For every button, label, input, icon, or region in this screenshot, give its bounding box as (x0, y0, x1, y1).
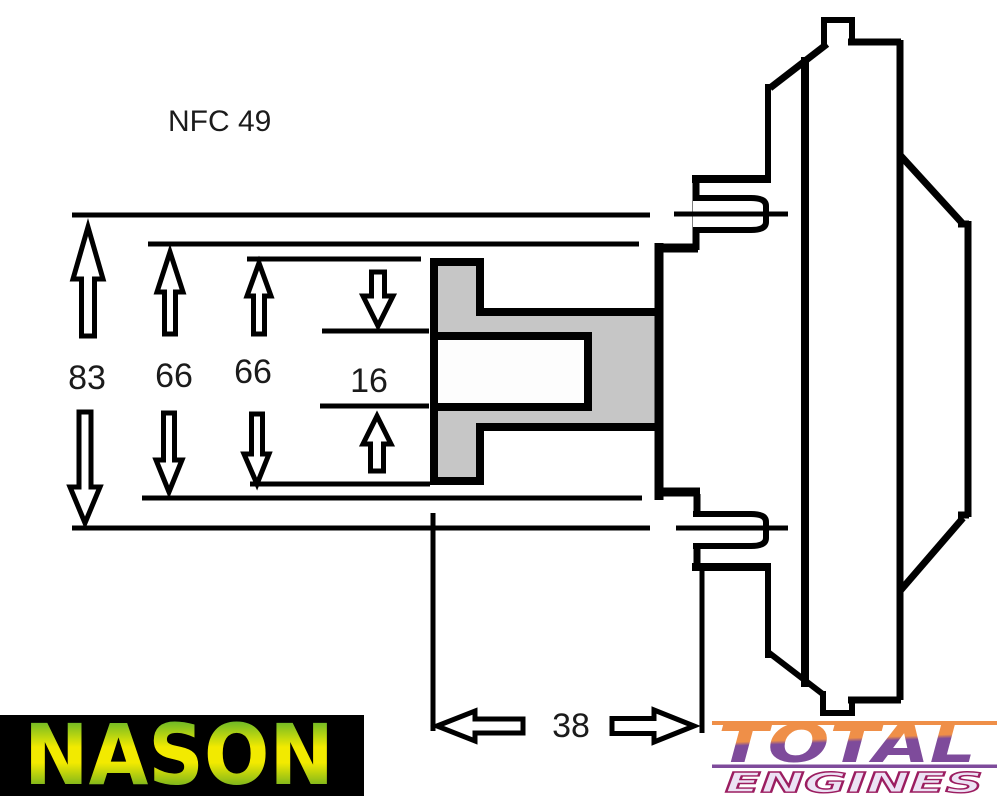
clutch-hub (434, 262, 659, 481)
flywheel-chamfer-top-left (770, 44, 827, 88)
technical-drawing-canvas: NFC 49 83 66 66 16 38 NASON TOTAL ENGINE… (0, 0, 1000, 796)
part-code-label: NFC 49 (168, 105, 271, 138)
arrow-16-down (363, 272, 393, 326)
stud-centerlines (674, 214, 788, 528)
dim-83-label: 83 (68, 359, 106, 397)
dim-66-inner-label: 66 (234, 353, 272, 391)
arrow-38-left (437, 711, 523, 741)
arrow-83-up (73, 227, 103, 336)
crankshaft-notch-bottom (823, 691, 852, 713)
clutch-cover (655, 175, 771, 567)
arrow-38-right (612, 710, 694, 742)
clutch-kit-diagram-page: NFC 49 83 66 66 16 38 NASON TOTAL ENGINE… (0, 0, 1000, 796)
arrow-66-inner-down (244, 414, 269, 484)
ring-gear-chamfer-bottom (900, 518, 963, 591)
nason-logo: NASON (0, 706, 364, 796)
crankshaft-notch-top (824, 20, 852, 47)
arrow-66-outer-up (157, 252, 183, 334)
dim-38-label: 38 (552, 707, 590, 745)
flywheel-chamfer-bottom-left (768, 652, 824, 695)
arrow-16-up (363, 416, 391, 471)
ring-gear-chamfer-top (900, 155, 963, 224)
nason-logo-text: NASON (24, 706, 334, 796)
arrow-66-outer-down (156, 413, 182, 492)
hub-spline-bore (434, 336, 588, 407)
dim-16-label: 16 (350, 362, 388, 400)
flywheel (768, 20, 969, 713)
dim-66-outer-label: 66 (155, 357, 193, 395)
total-engines-logo: TOTAL ENGINES (712, 714, 997, 796)
engines-logo-text: ENGINES (725, 766, 983, 796)
arrow-83-down (70, 412, 100, 523)
arrow-66-inner-up (247, 263, 271, 334)
